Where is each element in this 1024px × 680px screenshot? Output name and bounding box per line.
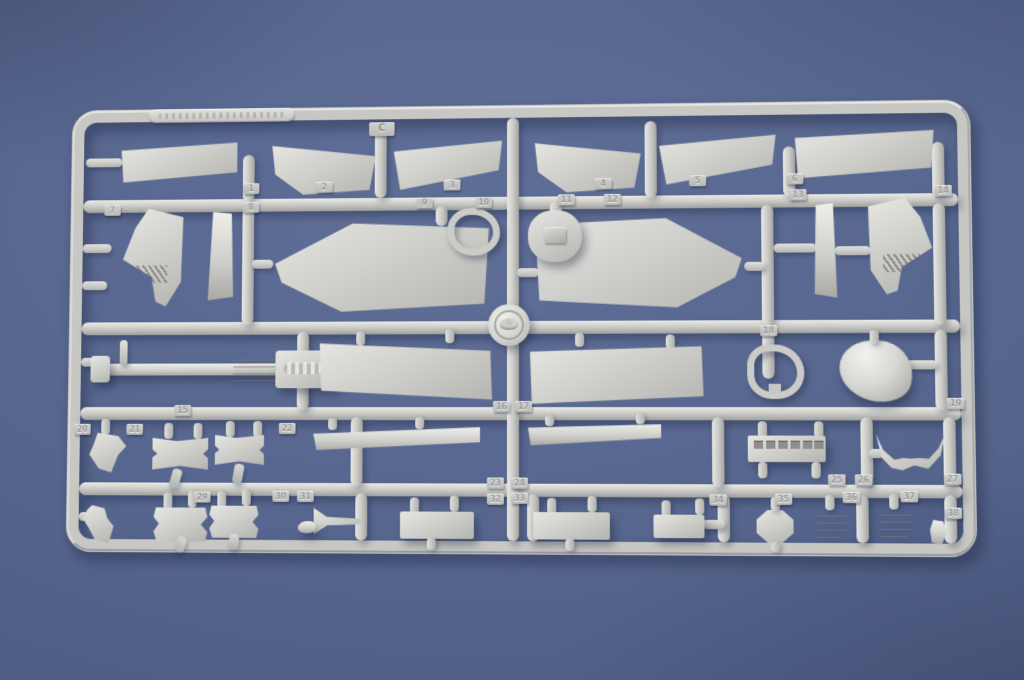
- ladder-slot: [803, 441, 812, 449]
- gate-peg: [164, 423, 173, 439]
- disc-center-boss: [544, 227, 566, 243]
- ladder-slot: [766, 441, 775, 449]
- gate-peg: [588, 496, 597, 512]
- part-access-panel-3: [653, 515, 704, 539]
- gate-stub: [774, 243, 817, 252]
- part-number-tab-38: 38: [944, 508, 962, 519]
- part-number-tab-27: 27: [944, 474, 962, 485]
- part-number-tab-32: 32: [487, 494, 504, 505]
- gate-peg: [163, 492, 172, 509]
- part-number-tab-24: 24: [511, 478, 528, 489]
- part-number-tab-13: 13: [789, 189, 806, 200]
- part-number-tab-21: 21: [126, 424, 143, 435]
- part-access-panel-1: [400, 511, 474, 539]
- gate-peg: [889, 494, 899, 509]
- gate-stub: [744, 262, 764, 271]
- part-notched-panel-1: [152, 438, 208, 470]
- part-number-tab-36: 36: [843, 492, 861, 503]
- part-number-tab-14: 14: [934, 185, 952, 196]
- gate-peg: [450, 496, 459, 512]
- sprue: C123456789101112131418151617192021222324…: [61, 89, 982, 567]
- gate-stub: [83, 244, 112, 253]
- part-bulkhead-disc: [528, 210, 582, 262]
- logo-medallion: [488, 304, 530, 346]
- runner: [934, 330, 948, 411]
- gate-peg: [445, 329, 454, 343]
- gate-stub: [86, 158, 123, 167]
- part-number-tab-29: 29: [194, 492, 211, 503]
- gate-peg: [636, 413, 645, 424]
- runner: [645, 121, 657, 198]
- ladder-slot: [754, 441, 763, 449]
- part-number-tab-8: 8: [243, 202, 260, 213]
- part-notched-panel-2: [215, 435, 264, 465]
- gate-stub: [252, 260, 274, 269]
- gate-peg: [427, 538, 436, 550]
- ladder-slot: [814, 441, 823, 449]
- gate-peg: [869, 330, 878, 344]
- part-number-tab-3: 3: [444, 179, 461, 190]
- gate-peg: [415, 417, 424, 429]
- ladder-slot: [778, 441, 787, 449]
- gate-peg: [226, 421, 235, 437]
- part-launch-rail-endcap: [90, 356, 110, 383]
- part-number-tab-33: 33: [511, 493, 528, 504]
- part-number-tab-7: 7: [104, 205, 121, 216]
- gate-stub: [120, 340, 128, 366]
- part-boarding-ladder: [748, 436, 826, 463]
- gate-peg: [242, 489, 251, 506]
- part-number-tab-26: 26: [855, 474, 873, 485]
- gate-stub: [82, 281, 107, 290]
- gate-peg: [356, 331, 365, 345]
- gate-peg: [217, 491, 226, 508]
- part-number-tab-31: 31: [297, 491, 314, 502]
- gate-peg: [253, 421, 262, 437]
- part-number-tab-35: 35: [775, 494, 793, 505]
- ring-inner-tab: [769, 384, 781, 394]
- photo-background: { "scene": { "type": "photograph", "subj…: [0, 0, 1024, 680]
- runner: [944, 495, 957, 543]
- gate-peg: [565, 539, 574, 551]
- runner: [436, 206, 448, 226]
- part-number-tab-9: 9: [416, 197, 433, 208]
- part-number-tab-15: 15: [174, 405, 191, 416]
- part-number-tab-22: 22: [279, 423, 296, 434]
- part-number-tab-2: 2: [316, 182, 333, 193]
- part-number-tab-25: 25: [828, 474, 846, 485]
- gate-peg: [695, 498, 704, 514]
- runner: [350, 417, 362, 486]
- part-number-tab-12: 12: [604, 194, 621, 205]
- part-intake-ring: [747, 344, 805, 399]
- runner: [355, 493, 367, 540]
- part-number-tab-19: 19: [947, 398, 965, 409]
- part-number-tab-37: 37: [900, 491, 918, 502]
- part-access-panel-2: [533, 512, 610, 540]
- part-number-tab-18: 18: [760, 325, 777, 336]
- part-number-tab-34: 34: [709, 494, 726, 505]
- gate-peg: [825, 495, 834, 510]
- gate-peg: [101, 419, 110, 435]
- gate-peg: [328, 418, 337, 430]
- runner: [933, 203, 947, 324]
- runner-letter-tab: C: [369, 122, 395, 136]
- ladder-leg: [758, 462, 767, 478]
- part-number-tab-6: 6: [786, 173, 803, 184]
- part-number-tab-1: 1: [243, 183, 260, 194]
- part-number-tab-30: 30: [272, 491, 289, 502]
- gate-peg: [194, 423, 203, 439]
- part-number-tab-16: 16: [493, 401, 510, 412]
- gate-peg: [545, 415, 554, 426]
- part-number-tab-4: 4: [595, 178, 612, 189]
- part-number-tab-20: 20: [74, 424, 91, 435]
- gate-stub: [835, 246, 871, 255]
- gate-peg: [575, 333, 584, 347]
- ladder-slot: [791, 441, 800, 449]
- part-number-tab-17: 17: [515, 401, 532, 412]
- part-number-tab-10: 10: [475, 197, 492, 208]
- part-small-hook: [298, 521, 316, 533]
- runner: [243, 155, 255, 202]
- gate-stub: [702, 520, 725, 529]
- part-canopy-frame-ring: [447, 208, 500, 256]
- part-number-tab-11: 11: [558, 194, 575, 205]
- gate-peg: [666, 335, 675, 349]
- gate-peg: [771, 542, 780, 552]
- part-number-tab-23: 23: [487, 477, 504, 488]
- motor-coil-detail: [283, 362, 322, 374]
- part-wing-half-right: [530, 342, 704, 405]
- part-number-tab-5: 5: [689, 175, 706, 186]
- runner: [712, 417, 725, 487]
- ladder-leg: [811, 462, 820, 478]
- embossed-brand-plate: [149, 108, 294, 123]
- gate-stub: [517, 268, 539, 277]
